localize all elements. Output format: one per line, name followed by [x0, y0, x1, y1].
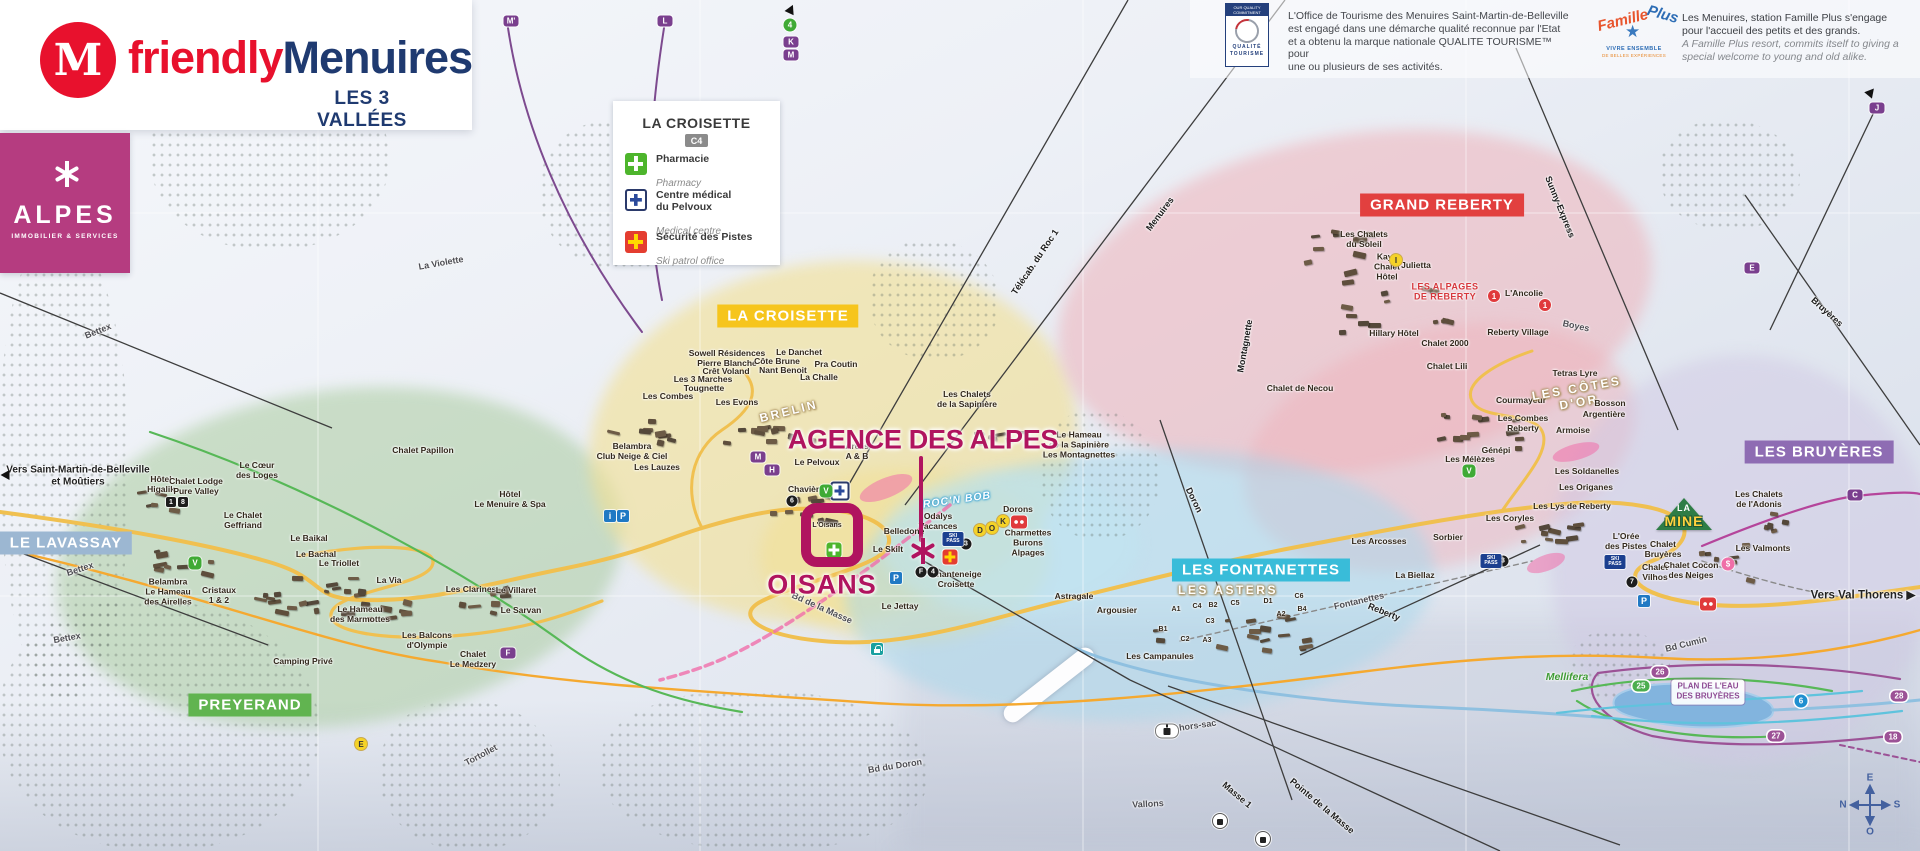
map-badge-cy: I: [1390, 254, 1402, 266]
map-label: Les Chalets du Soleil: [1340, 230, 1388, 250]
legend-sublabel: Pharmacy: [656, 178, 701, 189]
map-label: Le Cœur des Loges: [236, 461, 278, 481]
map-label: Reberty Village: [1487, 328, 1548, 338]
map-label: L'Orée des Pistes: [1605, 532, 1647, 552]
map-badge-rb: [1011, 516, 1027, 529]
legend-grid-ref: C4: [685, 134, 708, 147]
map-label: Chalet Lili: [1427, 362, 1468, 372]
la-mine-logo: LA MINE: [1652, 496, 1716, 542]
arrow-icon: [1, 470, 10, 480]
map-label: Chalet Cocon des Neiges: [1664, 561, 1719, 581]
map-badge-cb: F: [916, 567, 927, 578]
map-badge-cy: K: [997, 515, 1009, 527]
map-badge-pp: E: [1745, 263, 1760, 274]
qualite-tourisme-logo: OUR QUALITY COMMITMENT QUALITÉ TOURISME: [1225, 3, 1269, 67]
map-label: La Violette: [418, 254, 464, 272]
map-badge-cg: 4: [784, 19, 797, 32]
map-label: Bettex: [53, 631, 82, 646]
brand-friendly: friendly: [128, 32, 283, 83]
brand-wordmark: friendlyMenuires: [128, 32, 472, 84]
map-label: Les Balcons d'Olympie: [402, 631, 452, 651]
map-label: Le Danchet: [776, 348, 822, 358]
map-label: D1: [1264, 598, 1273, 606]
map-label: A1: [1172, 606, 1181, 614]
map-label: Les Soldanelles: [1555, 467, 1619, 477]
agency-residence-label: OISANS: [767, 570, 877, 601]
map-badge-cb: 7: [1627, 577, 1638, 588]
map-label: Chalet Papillon: [392, 446, 453, 456]
region-label: PREYERAND: [188, 694, 311, 717]
map-badge-cb: 4: [928, 567, 939, 578]
map-label: C4: [1193, 603, 1202, 611]
map-label: Les Coryles: [1486, 514, 1534, 524]
map-label: Bettex: [65, 560, 94, 578]
map-label: Les Combes: [643, 392, 694, 402]
map-badge-pp: M: [751, 452, 766, 463]
famille-plus-text-en: A Famille Plus resort, commits itself to…: [1682, 38, 1917, 64]
map-label: Hillary Hôtel: [1369, 329, 1419, 339]
map-label: Menuires: [1144, 195, 1176, 233]
legend-card: LA CROISETTE C4 Pharmacie Pharmacy Centr…: [613, 101, 780, 265]
map-label: Le Triollet: [319, 559, 359, 569]
agency-snowflake-marker: [910, 538, 936, 564]
valley-shade: [0, 700, 1920, 851]
map-label: Les Campanules: [1126, 652, 1194, 662]
map-badge-sp: SKI PASS: [1481, 554, 1502, 568]
map-badge-go: [1155, 724, 1179, 739]
map-label: Courmayeur: [1496, 396, 1546, 406]
map-label: La Biellaz: [1395, 571, 1434, 581]
map-badge-pp: L: [658, 16, 673, 27]
arrow-icon: [1864, 85, 1877, 98]
qualite-tourisme-text: L'Office de Tourisme des Menuires Saint-…: [1288, 10, 1574, 74]
map-badge-cb: 3: [1498, 556, 1509, 567]
famille-plus-star-icon: ★: [1625, 22, 1640, 42]
alpes-snowflake-icon: [54, 161, 80, 187]
map-label: Reberty: [1367, 601, 1402, 623]
map-label: Chalet 2000: [1421, 339, 1468, 349]
famille-plus-text: Les Menuires, station Famille Plus s'eng…: [1682, 12, 1917, 65]
map-badge-cy: D: [974, 524, 986, 536]
map-label: Les Chalets de l'Adonis: [1735, 490, 1783, 510]
map-label: Génépi: [1482, 446, 1511, 456]
map-badge-pp: J: [1870, 103, 1885, 114]
map-label: Les Evons: [716, 398, 759, 408]
compass-arrows: [1848, 783, 1892, 827]
agency-highlight-square: [801, 503, 863, 567]
map-badge-vg: V: [1463, 465, 1476, 478]
pharmacy-cross-icon: [625, 153, 647, 175]
map-badge-xb: [831, 482, 850, 501]
map-label: Mellifera: [1546, 671, 1589, 683]
map-label: Chalet Vilhos: [1642, 563, 1668, 583]
map-badge-pp: H: [765, 465, 780, 476]
map-badge-pp: K: [784, 37, 799, 48]
plan-de-leau-label: PLAN DE L'EAU DES BRUYÈRES: [1671, 680, 1744, 705]
map-label: Le Hameau des Marmottes: [330, 605, 390, 625]
map-label: Masse 1: [1220, 780, 1253, 810]
region-label: LE LAVASSAY: [0, 532, 132, 555]
map-label: A2: [1277, 611, 1286, 619]
map-label: Montagnette: [1235, 319, 1254, 373]
map-label: Les Lauzes: [634, 463, 680, 473]
map-label: B4: [1298, 606, 1307, 614]
map-label: Bosson: [1594, 399, 1625, 409]
alpes-name: ALPES: [0, 201, 130, 230]
map-label: Les Clarines: [446, 585, 497, 595]
map-label: Chanteneige Croisette: [930, 570, 981, 590]
map-label: Le Chalet Geffriand: [224, 511, 262, 531]
map-badge-pk: $: [1722, 558, 1735, 571]
map-badge-pp: C: [1848, 490, 1863, 501]
medical-cross-icon: [625, 189, 647, 211]
agency-callout-line: [919, 456, 923, 542]
legend-item-pharmacy: Pharmacie Pharmacy: [625, 153, 709, 190]
map-badge-pp: F: [501, 648, 516, 659]
map-label: Vallons: [1132, 798, 1164, 810]
la-mine-line1: LA: [1652, 503, 1716, 513]
map-badge-sb: 1: [166, 497, 176, 507]
map-label: Belambra Club Neige & Ciel: [597, 442, 668, 462]
map-label: Bd Cumin: [1664, 634, 1708, 654]
map-label: Sowell Résidences Pierre Blanche: [689, 349, 766, 369]
map-label: Le Skilt: [873, 545, 903, 555]
map-badge-lk: [871, 643, 883, 655]
map-label: Les Arcosses: [1352, 537, 1407, 547]
map-badge-qb: i: [604, 510, 616, 522]
map-badge-rb: [1700, 598, 1716, 611]
map-badge-cy: E: [355, 738, 367, 750]
region-label: GRAND REBERTY: [1360, 194, 1524, 217]
map-badge-rg: 25: [1633, 681, 1650, 692]
map-badge-pp: M: [784, 50, 799, 61]
map-badge-sp: SKI PASS: [1605, 555, 1626, 569]
map-label: Le Pelvoux: [795, 458, 840, 468]
map-badge-qb: P: [617, 510, 629, 522]
map-label: Côte Brune: [754, 357, 800, 367]
qualite-logo-name: QUALITÉ TOURISME: [1226, 44, 1268, 58]
brand-card: M friendlyMenuires LES 3 VALLÉES: [0, 0, 472, 130]
map-badge-rp: 27: [1768, 731, 1785, 742]
map-badge-cb: 3: [961, 539, 972, 550]
map-label: Salle hors-sac: [1155, 718, 1217, 737]
map-label: Les Combes Reberty: [1498, 414, 1549, 434]
resort-map: LA CROISETTEGRAND REBERTYLES BRUYÈRESLES…: [0, 0, 1920, 851]
map-label: Armoise: [1556, 426, 1590, 436]
region-label: LES BRUYÈRES: [1745, 441, 1894, 464]
map-badge-gc: [1255, 831, 1271, 847]
region-label: LA CROISETTE: [717, 305, 858, 328]
map-label: Odalys Vacances: [919, 512, 958, 532]
map-label: Le Bachal: [296, 550, 336, 560]
famille-plus-sub2: DE BELLES EXPÉRIENCES: [1595, 53, 1673, 58]
compass-right: S: [1894, 800, 1901, 811]
map-label: Sorbier: [1433, 533, 1463, 543]
map-label: Chavière: [788, 485, 824, 495]
map-label: Hôtel Higalik: [147, 475, 175, 495]
famille-plus-logo: Famille Plus ★ VIVRE ENSEMBLE DE BELLES …: [1595, 2, 1673, 62]
famille-plus-arc1: Famille: [1596, 6, 1650, 35]
map-label: Crêt Voland: [702, 367, 749, 377]
map-label: Pra Coutin: [815, 360, 858, 370]
map-badge-rp: 18: [1885, 732, 1902, 743]
region-label: LES FONTANETTES: [1172, 559, 1350, 582]
map-badge-gc: [1212, 813, 1228, 829]
map-badge-xr: [943, 550, 958, 565]
brand-menuires: Menuires: [283, 32, 473, 83]
map-label: Cristaux 1 & 2: [202, 586, 236, 606]
map-label: Chalet de Necou: [1267, 384, 1334, 394]
map-label: Les Valmonts: [1736, 544, 1791, 554]
compass-rose: E S O N: [1848, 783, 1892, 827]
brand-tagline: LES 3 VALLÉES: [287, 88, 437, 132]
map-label: B2: [1209, 602, 1218, 610]
map-label: LES ALPAGES DE REBERTY: [1412, 282, 1479, 303]
famille-plus-text-fr: Les Menuires, station Famille Plus s'eng…: [1682, 12, 1917, 38]
map-label: Le Sarvan: [501, 606, 542, 616]
map-label: Tougnette: [684, 384, 724, 394]
map-label: Bettex: [83, 321, 112, 341]
map-badge-sp: SKI PASS: [943, 532, 964, 546]
map-badge-sb: 8: [178, 497, 188, 507]
map-label: Chalet Bruyères: [1645, 540, 1682, 560]
map-badge-qb: P: [890, 572, 902, 584]
map-label: Les 3 Marches: [674, 375, 733, 385]
legend-sublabel: Ski patrol office: [656, 256, 724, 267]
map-badge-vg: V: [189, 557, 202, 570]
map-label: Doron: [1184, 486, 1205, 514]
map-label: Vers Saint-Martin-de-Belleville et Moûti…: [6, 465, 149, 488]
map-badge-rp: 26: [1652, 667, 1669, 678]
map-label: LES ASTERS: [1178, 584, 1278, 598]
map-label: Chalet Le Medzery: [450, 650, 496, 670]
map-label: C6: [1295, 593, 1304, 601]
map-label: Camping Privé: [273, 657, 333, 667]
map-badge-vg: V: [820, 485, 833, 498]
map-label: Argentière: [1583, 410, 1626, 420]
legend-label: Sécurité des Pistes: [656, 231, 752, 243]
map-label: Bd du Doron: [867, 757, 922, 776]
region-overlay-fontanettes: [838, 435, 1441, 736]
map-label: Les Chalets de la Sapinière: [937, 390, 997, 410]
map-label: ROC'N BOB: [922, 489, 992, 511]
map-badge-cB: 6: [1795, 695, 1808, 708]
map-label: Les Lys de Reberty: [1533, 502, 1611, 512]
region-overlay-preyerand: [34, 352, 645, 763]
arrow-icon: [785, 3, 798, 15]
map-badge-cy: O: [986, 522, 998, 534]
map-label: Les Mélèzes: [1445, 455, 1495, 465]
map-label: Nant Benoit: [759, 366, 807, 376]
legend-label: Pharmacie: [656, 153, 709, 165]
map-badge-cb: 6: [787, 496, 798, 507]
map-label: Charmettes Burons Alpages: [1005, 528, 1052, 557]
map-badge-pp: M': [504, 16, 519, 27]
map-label: Argousier: [1097, 606, 1137, 616]
map-label: Kaya Chalet Hôtel: [1374, 252, 1400, 281]
map-label: L'Ancolie: [1505, 289, 1543, 299]
map-label: Julietta: [1401, 261, 1431, 271]
compass-top: E: [1867, 773, 1874, 784]
map-label: Tortollet: [463, 742, 499, 768]
map-label: Dorons: [1003, 505, 1033, 515]
ski-patrol-cross-icon: [625, 231, 647, 253]
map-label: La Via: [377, 576, 402, 586]
menuires-m-logo-icon: M: [40, 22, 116, 98]
region-overlay-grand-reberty: [1030, 85, 1679, 519]
qualite-logo-top-text: OUR QUALITY COMMITMENT: [1226, 4, 1268, 16]
map-label: Le Baikal: [290, 534, 327, 544]
famille-plus-sub1: VIVRE ENSEMBLE: [1595, 46, 1673, 52]
map-badge-rp: 28: [1891, 691, 1908, 702]
map-label: Vers Val Thorens ▶: [1811, 589, 1916, 602]
terrain-wash: [900, 620, 1920, 851]
la-mine-line2: MINE: [1652, 513, 1716, 529]
legend-item-ski-patrol: Sécurité des Pistes Ski patrol office: [625, 231, 752, 268]
compass-bottom: O: [1866, 827, 1874, 838]
map-label: BRELIN: [758, 398, 819, 426]
map-label: C3: [1206, 618, 1215, 626]
map-label: Hôtel Le Menuire & Spa: [474, 490, 545, 510]
agency-callout-title: AGENCE DES ALPES: [788, 425, 1058, 456]
map-label: Belambra Le Hameau des Airelles: [144, 577, 191, 606]
alpes-agency-card: ALPES IMMOBILIER & SERVICES: [0, 133, 130, 273]
map-label: La Challe: [800, 373, 838, 383]
ski-piste-ribbon: [1000, 644, 1098, 726]
map-label: Sunny-Express: [1543, 175, 1577, 240]
map-label: Les Origanes: [1559, 483, 1613, 493]
map-label: Pointe de la Masse: [1288, 776, 1356, 836]
map-label: Tetras Lyre: [1553, 369, 1598, 379]
alpes-subtitle: IMMOBILIER & SERVICES: [0, 233, 130, 240]
region-overlay-grand-reberty-2: [1216, 282, 1663, 613]
map-label: A3: [1203, 637, 1212, 645]
map-label: Bruyères: [1809, 295, 1845, 329]
legend-label: Centre médical du Pelvoux: [656, 189, 731, 213]
map-label: Chalet Lodge Pure Valley: [169, 477, 223, 497]
map-badge-cr: 1: [1488, 290, 1500, 302]
compass-left: N: [1839, 800, 1846, 811]
map-label: Le Villaret: [496, 586, 536, 596]
map-label: Télécab. du Roc 1: [1009, 227, 1060, 296]
map-label: C5: [1231, 600, 1240, 608]
map-label: C2: [1181, 636, 1190, 644]
map-label: Le Jettay: [882, 602, 919, 612]
map-label: LES CÔTES D'OR: [1531, 375, 1625, 418]
map-label: B1: [1159, 626, 1168, 634]
legend-title: LA CROISETTE: [613, 115, 780, 131]
map-badge-cr: 1: [1539, 299, 1551, 311]
map-badge-qb: P: [1638, 595, 1650, 607]
map-label: Fontanettes: [1333, 590, 1385, 612]
map-label: Astragale: [1055, 592, 1094, 602]
map-label: Boyes: [1562, 318, 1591, 334]
